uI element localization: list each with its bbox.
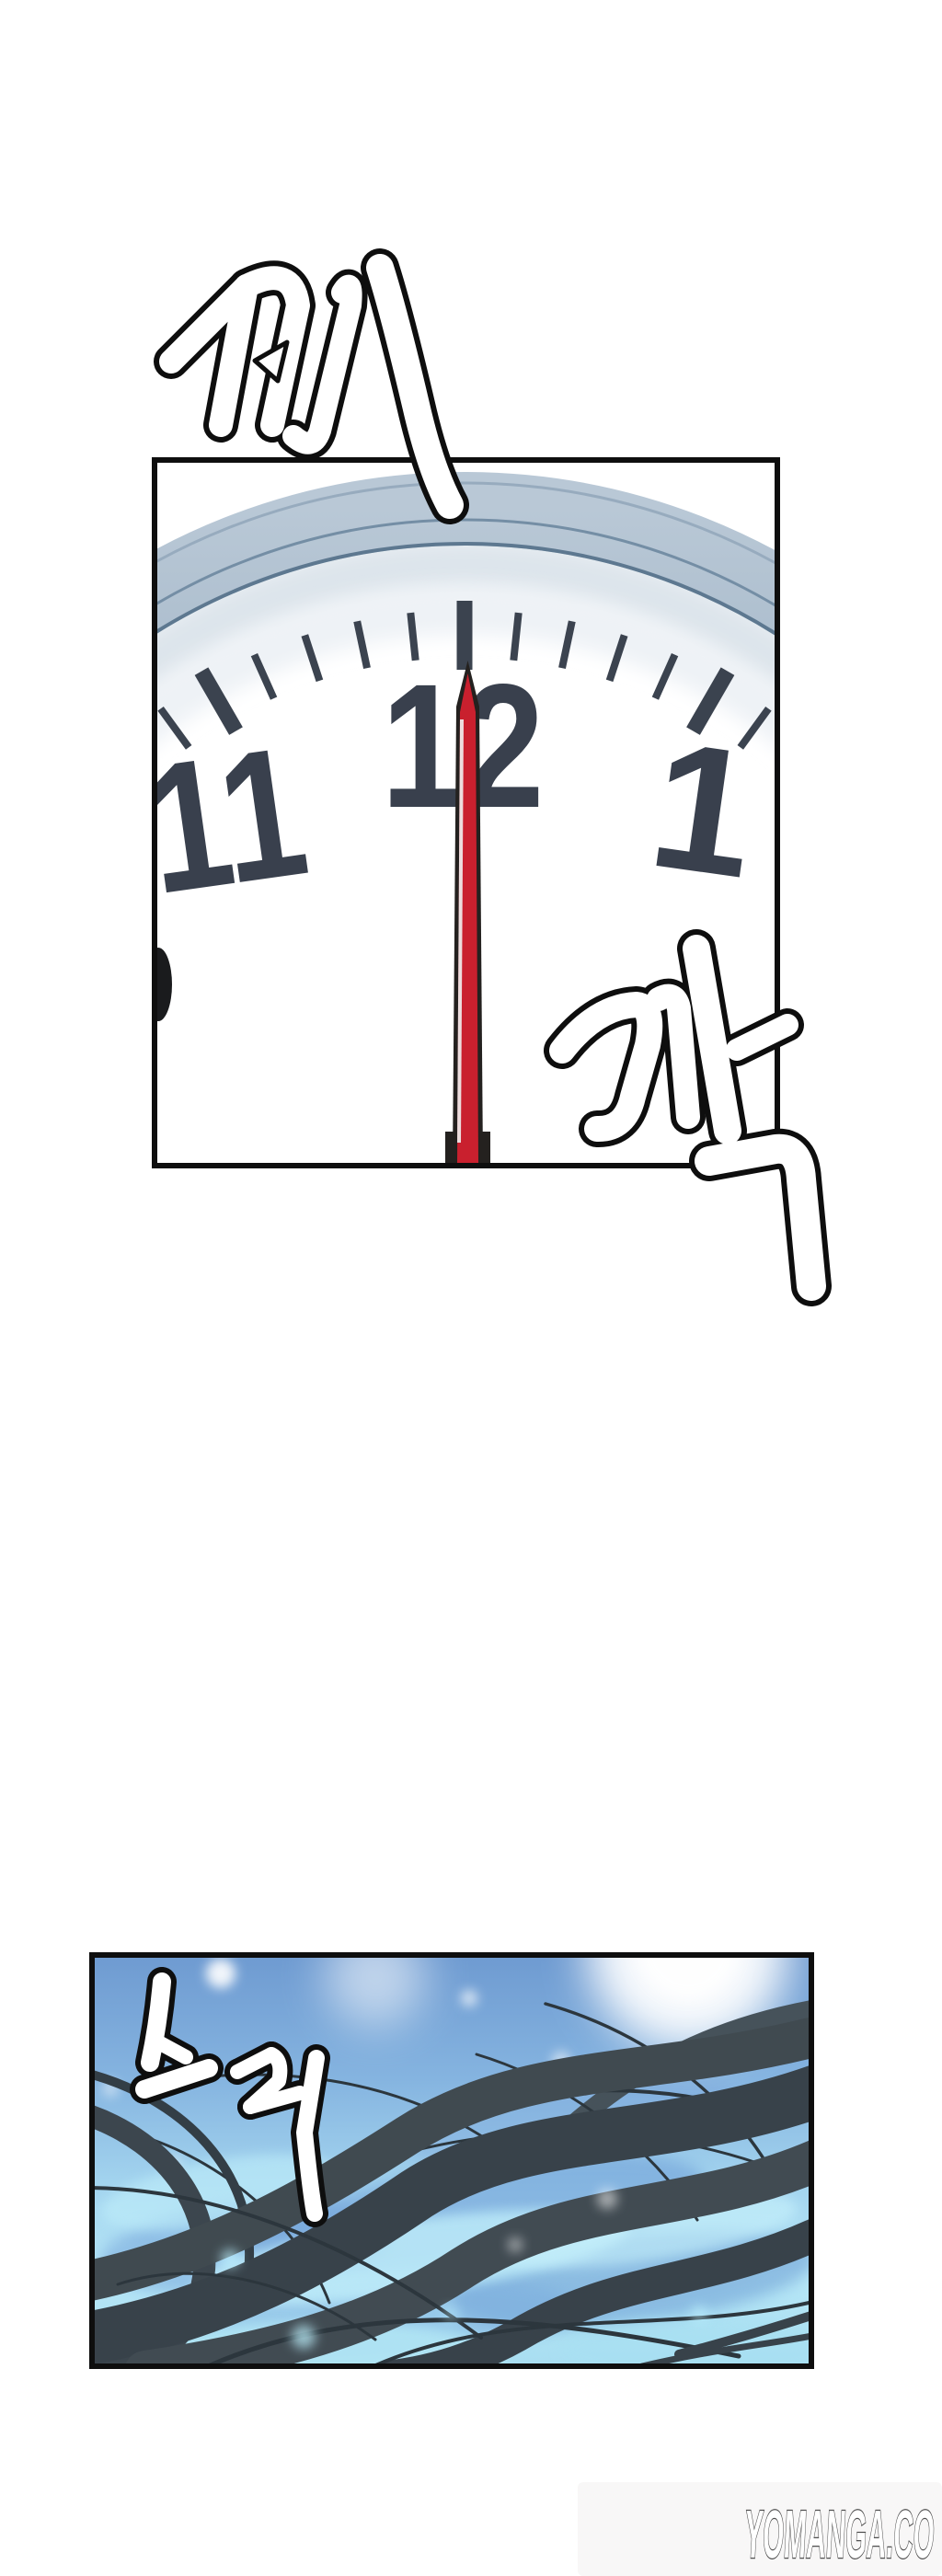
clock-numeral-11: 11 bbox=[157, 708, 317, 933]
manhwa-page: 11 12 1 bbox=[0, 0, 942, 2576]
watermark-text: YOMANGA.CO bbox=[743, 2497, 936, 2572]
clock-illustration: 11 12 1 bbox=[157, 463, 775, 1163]
clock-panel: 11 12 1 bbox=[152, 457, 780, 1168]
underwater-panel bbox=[89, 1952, 814, 2369]
watermark: YOMANGA.CO bbox=[741, 2497, 942, 2576]
underwater-illustration bbox=[95, 1958, 809, 2363]
